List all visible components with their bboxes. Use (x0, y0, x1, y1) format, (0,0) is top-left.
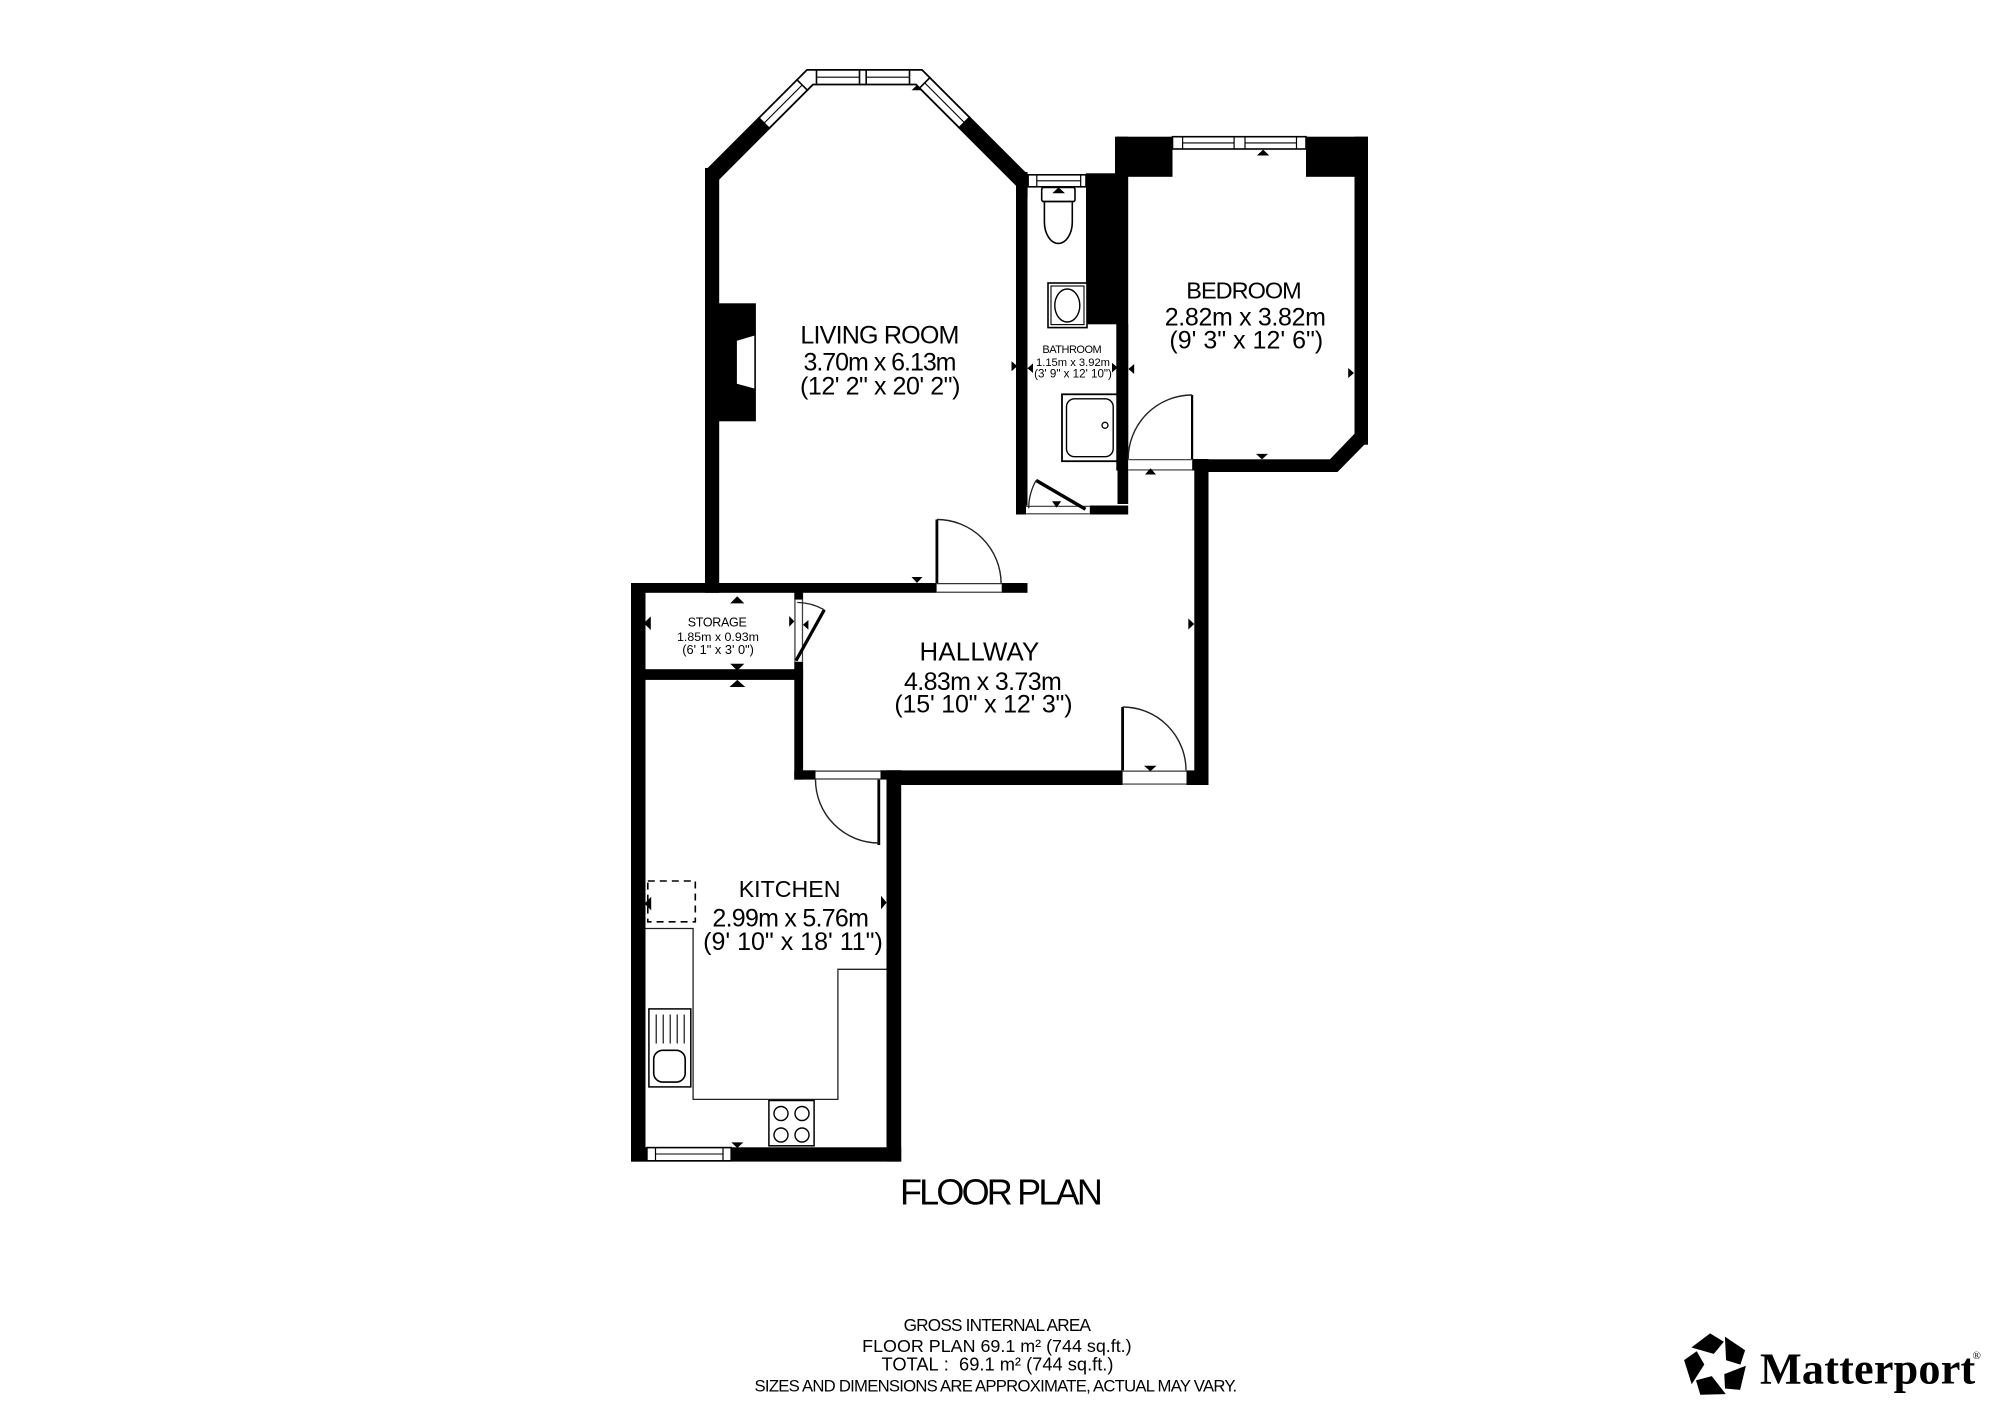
svg-text:(9' 10" x 18' 11"): (9' 10" x 18' 11") (703, 928, 883, 956)
svg-text:TOTAL : 69.1 m² (744 sq.ft.): TOTAL : 69.1 m² (744 sq.ft.) (882, 1353, 1114, 1374)
svg-text:(12' 2" x 20' 2"): (12' 2" x 20' 2") (800, 373, 960, 401)
svg-text:(9' 3" x 12' 6"): (9' 3" x 12' 6") (1169, 326, 1323, 354)
svg-text:HALLWAY: HALLWAY (920, 639, 1040, 667)
svg-text:LIVING ROOM: LIVING ROOM (800, 322, 958, 350)
svg-text:(3' 9" x 12' 10"): (3' 9" x 12' 10") (1034, 368, 1112, 381)
svg-text:KITCHEN: KITCHEN (739, 876, 841, 902)
svg-text:(6' 1" x 3' 0"): (6' 1" x 3' 0") (682, 642, 754, 657)
svg-text:(15' 10" x 12' 3"): (15' 10" x 12' 3") (894, 691, 1072, 719)
svg-text:FLOOR PLAN: FLOOR PLAN (900, 1171, 1101, 1212)
svg-text:BATHROOM: BATHROOM (1042, 344, 1101, 356)
svg-text:Matterport: Matterport (1760, 1345, 1976, 1394)
svg-text:SIZES AND DIMENSIONS ARE APPRO: SIZES AND DIMENSIONS ARE APPROXIMATE, AC… (755, 1377, 1237, 1396)
svg-text:®: ® (1973, 1350, 1981, 1362)
svg-text:GROSS INTERNAL AREA: GROSS INTERNAL AREA (904, 1315, 1092, 1335)
svg-text:BEDROOM: BEDROOM (1186, 278, 1300, 304)
svg-text:STORAGE: STORAGE (688, 616, 747, 630)
